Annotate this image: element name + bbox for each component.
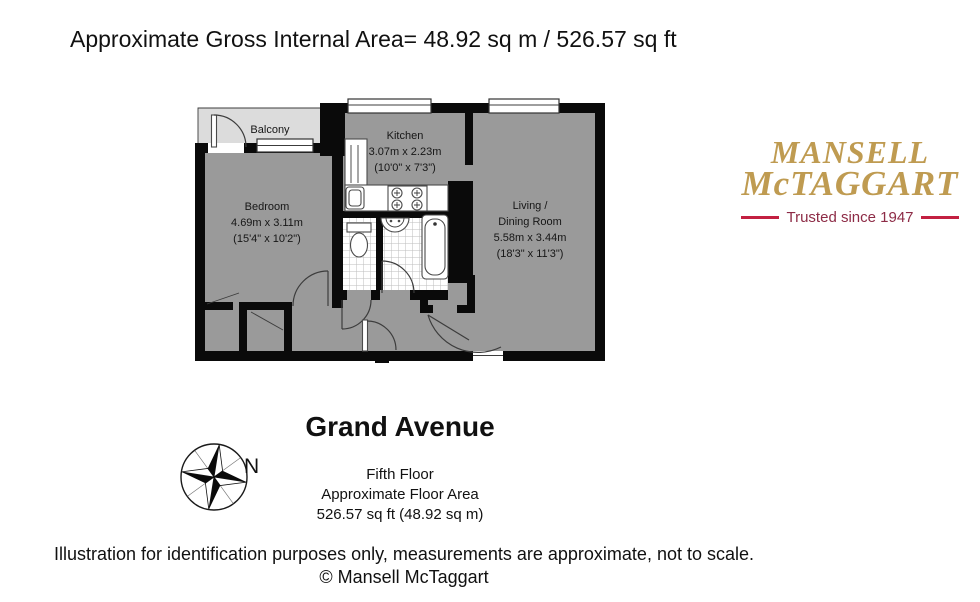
floor-line: Fifth Floor bbox=[200, 465, 600, 485]
room-label-balcony: Balcony bbox=[250, 124, 290, 136]
room-label-kitchen: Kitchen bbox=[387, 130, 424, 142]
compass-rose bbox=[176, 439, 252, 515]
property-name: Grand Avenue bbox=[200, 411, 600, 443]
tagline-rule-left bbox=[741, 216, 779, 219]
area-label-line: Approximate Floor Area bbox=[200, 485, 600, 505]
area-value-line: 526.57 sq ft (48.92 sq m) bbox=[200, 505, 600, 525]
page-title: Approximate Gross Internal Area= 48.92 s… bbox=[70, 26, 677, 53]
svg-text:5.58m x 3.44m: 5.58m x 3.44m bbox=[494, 232, 567, 244]
floorplan-page: { "page": { "title_line": "Approximate G… bbox=[0, 0, 980, 602]
disclaimer-text: Illustration for identification purposes… bbox=[0, 543, 808, 566]
logo-tagline: Trusted since 1947 bbox=[786, 209, 913, 226]
svg-text:(18'3" x 11'3"): (18'3" x 11'3") bbox=[497, 248, 564, 260]
compass-north-label: N bbox=[244, 455, 259, 479]
living-room-window bbox=[489, 99, 559, 113]
logo-tagline-row: Trusted since 1947 bbox=[738, 209, 962, 226]
svg-text:(10'0" x 7'3"): (10'0" x 7'3") bbox=[374, 162, 436, 174]
footer: Illustration for identification purposes… bbox=[0, 543, 808, 589]
floorplan-drawing: Balcony Kitchen 3.07m x 2.23m (10'0" x 7… bbox=[195, 98, 605, 363]
tagline-rule-right bbox=[921, 216, 959, 219]
logo-name-line2: McTAGGART bbox=[738, 166, 962, 202]
svg-text:Dining Room: Dining Room bbox=[498, 216, 562, 228]
kitchen-living-opening bbox=[465, 165, 473, 181]
floor-details: Fifth Floor Approximate Floor Area 526.5… bbox=[200, 465, 600, 525]
room-label-living-dining: Living / bbox=[513, 200, 549, 212]
room-label-bedroom: Bedroom bbox=[245, 201, 290, 213]
kitchen-window bbox=[348, 99, 431, 113]
copyright-text: © Mansell McTaggart bbox=[0, 566, 808, 589]
svg-text:3.07m x 2.23m: 3.07m x 2.23m bbox=[369, 146, 442, 158]
bedroom-window bbox=[257, 139, 313, 152]
svg-text:4.69m x 3.11m: 4.69m x 3.11m bbox=[231, 217, 303, 229]
svg-text:(15'4" x 10'2"): (15'4" x 10'2") bbox=[233, 233, 301, 245]
agency-logo: MANSELL McTAGGART Trusted since 1947 bbox=[738, 136, 962, 226]
bathtub bbox=[422, 215, 448, 279]
